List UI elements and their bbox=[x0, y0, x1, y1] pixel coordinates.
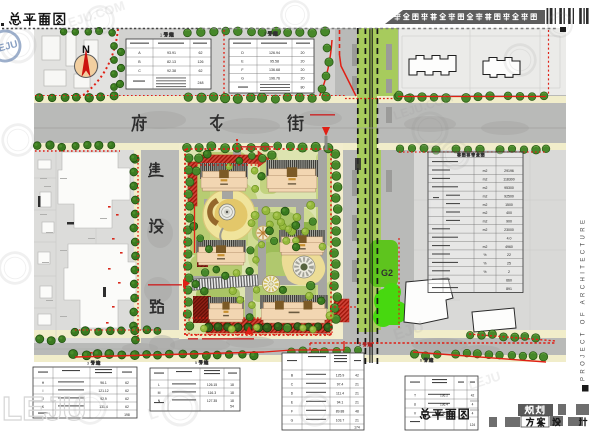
svg-text:M: M bbox=[158, 391, 161, 395]
svg-text:95.58: 95.58 bbox=[270, 59, 279, 63]
svg-text:42: 42 bbox=[471, 393, 475, 397]
svg-text:116.3: 116.3 bbox=[208, 391, 216, 395]
svg-text:m2: m2 bbox=[483, 169, 488, 173]
svg-text:400: 400 bbox=[506, 211, 512, 215]
svg-text:54: 54 bbox=[230, 405, 234, 409]
svg-text:1500: 1500 bbox=[505, 203, 513, 207]
svg-text:118300: 118300 bbox=[503, 178, 514, 182]
svg-text:m2: m2 bbox=[483, 178, 488, 182]
svg-text:29196: 29196 bbox=[504, 169, 514, 173]
svg-text:L: L bbox=[158, 383, 160, 387]
svg-text:136.2: 136.2 bbox=[440, 393, 448, 397]
svg-text:62: 62 bbox=[125, 405, 129, 409]
svg-text:20: 20 bbox=[301, 68, 305, 72]
svg-text:18: 18 bbox=[230, 391, 234, 395]
svg-text:C: C bbox=[138, 69, 141, 73]
svg-text:21: 21 bbox=[355, 382, 359, 386]
svg-text:48: 48 bbox=[355, 409, 359, 413]
svg-text:22: 22 bbox=[507, 253, 511, 257]
svg-text:62: 62 bbox=[125, 389, 129, 393]
svg-text:PROJECT OF ARCHITECTURE: PROJECT OF ARCHITECTURE bbox=[581, 217, 587, 381]
svg-text:93.91: 93.91 bbox=[167, 51, 176, 55]
svg-text:m2: m2 bbox=[483, 211, 488, 215]
svg-text:62: 62 bbox=[125, 397, 129, 401]
svg-text:4.0: 4.0 bbox=[507, 236, 512, 240]
svg-text:62: 62 bbox=[199, 51, 203, 55]
svg-text:%: % bbox=[483, 253, 486, 257]
svg-text:T: T bbox=[414, 393, 416, 397]
svg-text:95300: 95300 bbox=[504, 186, 514, 190]
svg-text:196.76: 196.76 bbox=[269, 76, 280, 80]
svg-text:m2: m2 bbox=[483, 203, 488, 207]
svg-text:18: 18 bbox=[230, 399, 234, 403]
svg-text:82.13: 82.13 bbox=[167, 60, 176, 64]
svg-text:D: D bbox=[241, 51, 244, 55]
svg-text:248: 248 bbox=[198, 81, 204, 85]
svg-text:96.1: 96.1 bbox=[100, 381, 107, 385]
svg-text:89.88: 89.88 bbox=[336, 409, 345, 413]
svg-text:F: F bbox=[291, 409, 293, 413]
svg-text:21: 21 bbox=[355, 418, 359, 422]
svg-text:136.68: 136.68 bbox=[269, 68, 280, 72]
svg-text:97.4: 97.4 bbox=[337, 382, 344, 386]
svg-text:94.1: 94.1 bbox=[337, 400, 344, 404]
svg-text:N: N bbox=[82, 44, 90, 56]
svg-text:21: 21 bbox=[355, 391, 359, 395]
svg-text:4: 4 bbox=[472, 402, 474, 406]
svg-text:18: 18 bbox=[230, 383, 234, 387]
svg-text:126: 126 bbox=[198, 60, 204, 64]
svg-text:G: G bbox=[241, 76, 244, 80]
svg-text:103.7: 103.7 bbox=[336, 418, 345, 422]
svg-text:92.38: 92.38 bbox=[167, 69, 176, 73]
svg-text:62: 62 bbox=[125, 381, 129, 385]
svg-text:4: 4 bbox=[359, 343, 361, 347]
svg-text:m2: m2 bbox=[483, 228, 488, 232]
svg-text:198: 198 bbox=[124, 413, 130, 417]
svg-text:127.35: 127.35 bbox=[207, 399, 217, 403]
svg-text:125.9: 125.9 bbox=[336, 373, 345, 377]
svg-text:2: 2 bbox=[508, 270, 510, 274]
svg-text:%: % bbox=[483, 270, 486, 274]
svg-text:92500: 92500 bbox=[504, 194, 514, 198]
svg-text:42: 42 bbox=[355, 373, 359, 377]
svg-text:174: 174 bbox=[354, 426, 360, 430]
svg-text:900: 900 bbox=[506, 220, 512, 224]
svg-text:21: 21 bbox=[355, 400, 359, 404]
svg-text:126.94: 126.94 bbox=[269, 51, 280, 55]
svg-text:4960: 4960 bbox=[505, 245, 513, 249]
svg-text:136.4: 136.4 bbox=[440, 402, 448, 406]
svg-text:G: G bbox=[291, 418, 294, 422]
svg-text:80: 80 bbox=[301, 86, 305, 90]
svg-text:20: 20 bbox=[301, 76, 305, 80]
svg-text:891: 891 bbox=[506, 287, 512, 291]
svg-text:660: 660 bbox=[506, 278, 512, 282]
svg-text:126.15: 126.15 bbox=[207, 383, 217, 387]
svg-text:25: 25 bbox=[507, 262, 511, 266]
svg-text:20: 20 bbox=[301, 59, 305, 63]
svg-text:m2: m2 bbox=[483, 245, 488, 249]
svg-text:m2: m2 bbox=[483, 220, 488, 224]
svg-text:111.4: 111.4 bbox=[336, 391, 344, 395]
svg-text:%: % bbox=[483, 262, 486, 266]
svg-text:4: 4 bbox=[472, 411, 474, 415]
svg-text:124: 124 bbox=[470, 423, 476, 427]
svg-text:m2: m2 bbox=[483, 194, 488, 198]
svg-text:G2: G2 bbox=[381, 268, 393, 278]
svg-text:23000: 23000 bbox=[504, 228, 514, 232]
svg-text:121.12: 121.12 bbox=[98, 389, 108, 393]
svg-text:20: 20 bbox=[301, 51, 305, 55]
svg-text:62: 62 bbox=[199, 69, 203, 73]
svg-text:m2: m2 bbox=[483, 186, 488, 190]
svg-text:LEJU: LEJU bbox=[2, 390, 86, 427]
